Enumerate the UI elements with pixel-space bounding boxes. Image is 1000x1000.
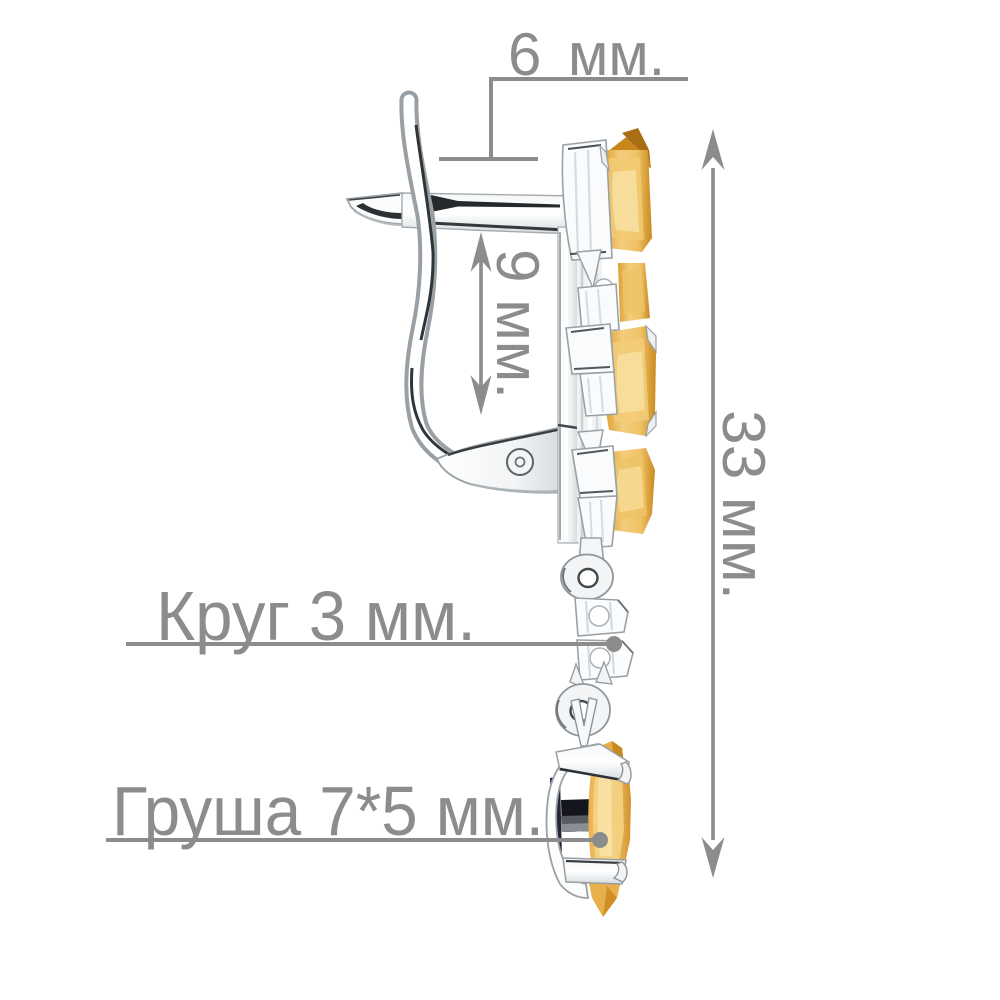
svg-text:6: 6 — [508, 21, 541, 88]
svg-text:9 мм.: 9 мм. — [484, 249, 551, 399]
svg-text:мм.: мм. — [568, 21, 665, 88]
svg-text:33 мм.: 33 мм. — [710, 410, 777, 600]
